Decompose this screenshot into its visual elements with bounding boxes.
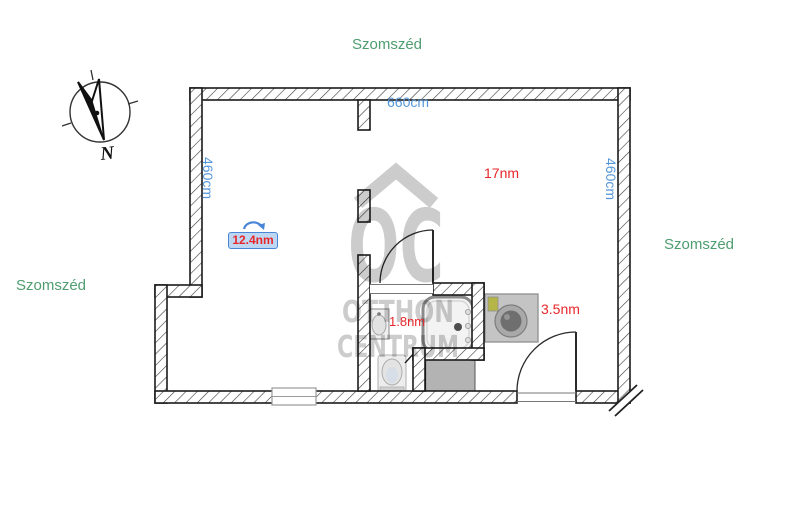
neighbor-label-right: Szomszéd [664, 236, 734, 253]
floor-plan-drawing: N [0, 0, 800, 524]
wall-segment [618, 88, 630, 403]
watermark-monogram: OC [348, 188, 444, 305]
rotate-handle-icon[interactable] [240, 217, 266, 231]
room-area-main: 17nm [484, 165, 519, 181]
neighbor-label-top: Szomszéd [352, 36, 422, 53]
compass-north-label: N [98, 143, 116, 166]
wall-segment [155, 285, 167, 403]
watermark: OC OTTHON CENTRUM [337, 171, 459, 365]
selected-room-area-chip[interactable]: 12.4nm [228, 232, 278, 249]
wall-segment [358, 100, 370, 130]
window [272, 388, 316, 405]
wall-segment [155, 391, 517, 403]
watermark-line2: CENTRUM [337, 330, 459, 365]
dimension-top: 660cm [387, 94, 429, 110]
neighbor-label-left: Szomszéd [16, 277, 86, 294]
room-area-bathroom: 1.8nm [389, 314, 425, 329]
compass-icon: N [62, 70, 138, 165]
dimension-left: 460cm [200, 157, 216, 199]
washing-machine [485, 294, 538, 342]
floor-plan-canvas: N [0, 0, 800, 524]
selected-room-label[interactable]: 12.4nm [228, 217, 278, 249]
dimension-right: 460cm [603, 158, 619, 200]
room-area-hall: 3.5nm [541, 301, 580, 317]
